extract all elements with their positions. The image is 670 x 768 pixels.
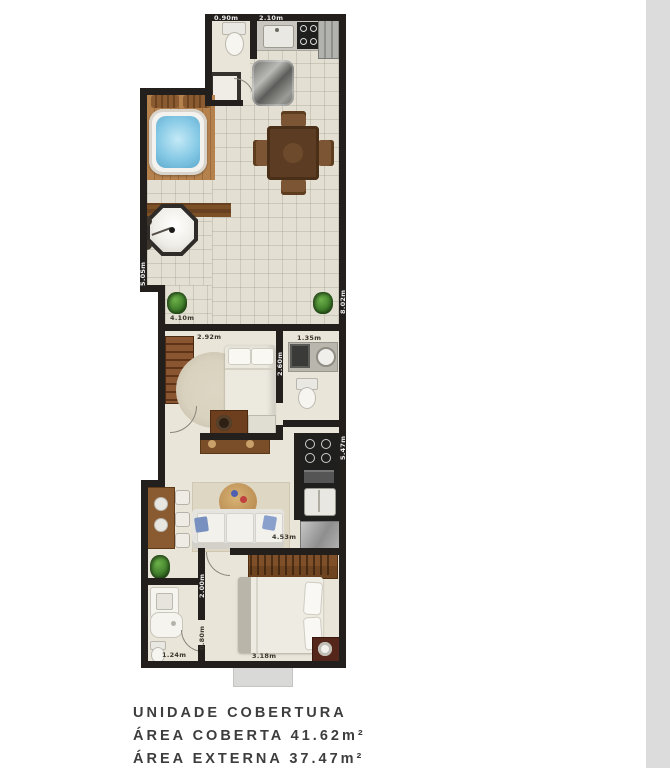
kitchen-sink [304,488,336,516]
glass-table [252,60,294,106]
plate [154,497,168,511]
sink-divider [318,490,320,512]
throw-pillow [262,515,277,531]
wall [294,433,300,520]
throw-pillow [194,516,209,533]
flower-blue [231,490,238,497]
bathtub [150,612,183,638]
dim-label: 5.47m [340,418,347,460]
washer [290,344,310,368]
wall [141,480,148,668]
burner-icon [321,453,331,463]
dim-label: 5.05m [140,238,147,286]
image-edge-strip [646,0,670,768]
wall [158,331,165,487]
dining-chair-top [281,111,306,127]
wall [200,433,276,440]
dining-chair-bottom [281,179,306,195]
floor-plan: 0.90m 2.10m 5.05m 8.02m 4.10m 2.92m 2.60… [0,0,670,768]
burner-icon [310,25,317,32]
duvet-fold [256,577,258,653]
dim-label: 0.80m [199,620,206,650]
caption-line-unit: UNIDADE COBERTURA [133,702,393,725]
wall [339,331,346,668]
burner-icon [300,25,307,32]
plate [154,518,168,532]
burner-icon [310,38,317,45]
toilet-bowl-1 [298,387,316,409]
nook-chair [175,533,190,548]
cabinet-top [318,17,341,59]
wall [230,548,339,555]
umbrella-pole [169,227,175,233]
wall [158,324,346,331]
dim-label: 0.90m [214,15,238,22]
flower-red [240,496,247,503]
stool-round [216,415,232,431]
plant-icon [150,555,170,579]
pillow [303,581,323,615]
dim-label: 3.18m [252,653,276,660]
burner-icon [305,453,315,463]
plant-icon [167,292,187,314]
wardrobe-2-hangers [250,553,334,575]
plan-caption: UNIDADE COBERTURA ÁREA COBERTA 41.62m² Á… [133,702,393,768]
faucet-dot-top [275,28,279,32]
burner-icon [321,439,331,449]
sink-round [316,347,336,367]
dim-label: 1.24m [162,652,186,659]
wall [276,425,283,440]
bed-2-foot-throw [238,577,251,653]
dim-label: 2.60m [277,334,284,376]
wall [141,480,165,487]
lounger-left [151,95,179,108]
wall [250,14,257,59]
vanity-basin [156,593,173,610]
wall [141,661,346,668]
caption-line-external-area: ÁREA EXTERNA 37.47m² [133,748,393,768]
caption-line-covered-area: ÁREA COBERTA 41.62m² [133,725,393,748]
entry-step [233,668,293,687]
dim-label: 4.53m [272,534,296,541]
toilet-bowl-top [225,32,244,56]
wall [140,88,212,95]
nook-chair [175,490,190,505]
wall [283,420,339,427]
nook-chair [175,512,190,527]
dim-label: 8.02m [340,266,347,314]
burner-icon [305,439,315,449]
drain-dot [171,621,176,626]
wall [148,578,205,585]
dim-label: 1.35m [297,335,321,342]
lamp-icon [318,642,332,656]
dining-table-center [283,143,303,163]
wall [205,100,243,106]
dining-chair-right [318,140,334,166]
pillow [251,348,274,365]
pillow [228,348,251,365]
burner-icon [300,38,307,45]
sofa-cushion [226,513,254,543]
dim-label: 2.00m [199,556,206,598]
decor-item [208,440,216,448]
dim-label: 2.10m [259,15,283,22]
plant-icon [313,292,333,314]
blanket-fold [225,368,275,370]
dim-label: 4.10m [170,315,194,322]
hot-tub-water [156,116,200,168]
decor-item [246,440,254,448]
dim-label: 2.92m [197,334,221,341]
oven [304,470,334,483]
fridge [300,521,341,551]
